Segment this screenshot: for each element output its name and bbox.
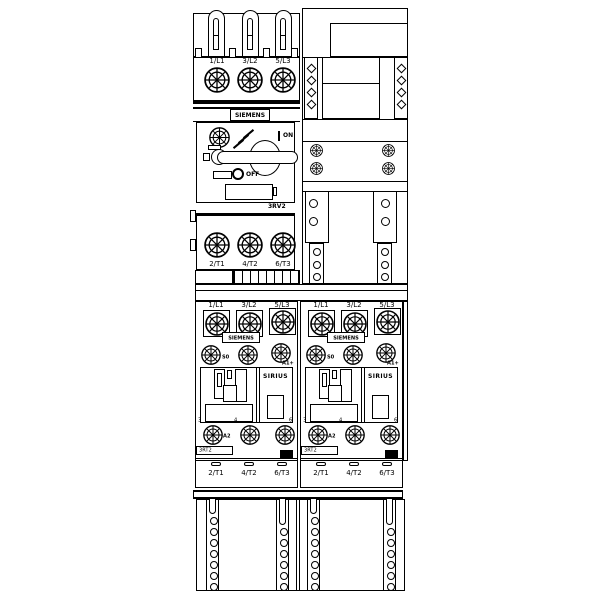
prong-slot (213, 18, 219, 50)
black-tab (280, 450, 293, 458)
face-divider (361, 367, 362, 423)
coil-screw-icon (201, 345, 221, 365)
prong-slot-line (213, 35, 219, 36)
side-clip (190, 210, 196, 222)
rail-hole (311, 550, 319, 558)
terminal-screw-icon (237, 232, 263, 258)
rail-hole (387, 550, 395, 558)
plate-bracket (305, 191, 329, 243)
indicator-slot (332, 370, 337, 379)
model-plate: 3RT2 (196, 446, 233, 455)
indicator-window (223, 385, 237, 402)
terminal-screw-icon (204, 232, 230, 258)
terminal-label: 4/T2 (235, 470, 263, 477)
indicator-slot-inner (322, 373, 327, 387)
rail-hole (210, 528, 218, 536)
rail-hole (311, 583, 319, 591)
rail-hole (280, 550, 288, 558)
series-label: SIRIUS (368, 374, 393, 380)
terminal-label: 1/L1 (307, 302, 335, 309)
adapter-divider (299, 499, 300, 591)
prong-slot (280, 18, 286, 50)
bracket-hole (309, 199, 318, 208)
series-label: SIRIUS (263, 374, 288, 380)
step-line (195, 458, 298, 459)
terminal-label: 4/T2 (340, 470, 368, 477)
off-position-mark (232, 168, 244, 180)
prong-slot-line (247, 35, 253, 36)
busbar-bar (193, 101, 300, 104)
clamp-slot (349, 462, 359, 466)
rail-hole (313, 248, 321, 256)
coil-screw-icon (345, 425, 365, 445)
coil-screw-icon (306, 345, 326, 365)
label-window (310, 404, 358, 422)
motor-starter-assembly-drawing: 1/L1 3/L2 5/L3 SIEMENS ON OFF 3RV2 2/T1 … (190, 5, 412, 597)
size-label: S0 (327, 355, 334, 360)
aux-screw-icon (308, 425, 328, 445)
face-tab (203, 153, 210, 161)
aux-mark: 3 (198, 418, 201, 423)
feeder-comb (233, 270, 300, 284)
rail-hole (210, 539, 218, 547)
prong-slot (247, 18, 253, 50)
rail-hole (381, 261, 389, 269)
bracket-hole (381, 199, 390, 208)
adapter-band (195, 284, 408, 301)
model-label: 3RT2 (304, 448, 317, 453)
rail-hole (387, 539, 395, 547)
brand-label: SIEMENS (224, 336, 258, 341)
rotary-handle (217, 151, 298, 164)
rail-hole (387, 528, 395, 536)
terminal-screw-icon (271, 310, 295, 334)
on-label: ON (283, 133, 293, 139)
rail-hole (280, 561, 288, 569)
rail-hole (381, 273, 389, 281)
rail-hole (311, 572, 319, 580)
model-label: 3RT2 (199, 448, 212, 453)
rail-hole (280, 583, 288, 591)
plate-screw-icon (382, 144, 395, 157)
terminal-screw-icon (376, 310, 400, 334)
aux-screw-icon (380, 425, 400, 445)
on-position-mark (278, 131, 280, 141)
face-divider (364, 367, 365, 423)
terminal-label: 3/L2 (236, 58, 264, 65)
coil-a1-label: A1+ (387, 361, 399, 366)
face-divider (259, 367, 260, 423)
aux-screw-icon (343, 345, 363, 365)
side-clip (190, 239, 196, 251)
terminal-label: 4/T2 (236, 261, 264, 268)
adapter-block (195, 270, 233, 284)
aux-block-window (267, 395, 284, 419)
rail-hole (280, 572, 288, 580)
off-label: OFF (246, 172, 259, 178)
terminal-label: 2/T1 (203, 261, 231, 268)
aux-block-window (372, 395, 389, 419)
terminal-screw-icon (204, 67, 230, 93)
size-label: S0 (222, 355, 229, 360)
terminal-label: 6/T3 (268, 470, 296, 477)
clamp-slot (211, 462, 221, 466)
coil-screw-icon (240, 425, 260, 445)
rail-hole (313, 261, 321, 269)
terminal-label: 3/L2 (340, 302, 368, 309)
indicator-window (328, 385, 342, 402)
brand-plate: SIEMENS (327, 332, 365, 343)
rail-notch (310, 499, 317, 514)
clamp-slot (277, 462, 287, 466)
terminal-label: 5/L3 (269, 58, 297, 65)
clamp-slot (382, 462, 392, 466)
aux-mark: 4 (339, 418, 342, 423)
aux-screw-icon (203, 425, 223, 445)
rail-hole (311, 561, 319, 569)
brand-label: SIEMENS (231, 113, 269, 119)
plate-screw-icon (382, 162, 395, 175)
rail-hole (210, 583, 218, 591)
plate-band-line (302, 119, 408, 120)
rail-notch (386, 499, 393, 525)
rating-window-notch (273, 187, 277, 196)
aux-screw-icon (238, 345, 258, 365)
label-window (205, 404, 253, 422)
plate-band-line (302, 181, 408, 182)
bracket-hole (309, 217, 318, 226)
aux-mark: 6 (289, 418, 292, 423)
rail-hole (381, 248, 389, 256)
brand-plate: SIEMENS (222, 332, 260, 343)
rail-hole (311, 517, 319, 525)
rail-hole (387, 561, 395, 569)
plate-screw-icon (310, 162, 323, 175)
terminal-label: 3/L2 (235, 302, 263, 309)
brand-label: SIEMENS (329, 336, 363, 341)
plate-window-divider (322, 83, 380, 84)
aux-mark: 3 (303, 418, 306, 423)
clamp-slot (316, 462, 326, 466)
plate-screw-icon (310, 144, 323, 157)
terminal-label: 6/T3 (373, 470, 401, 477)
rail-hole (387, 572, 395, 580)
right-edge-strip (403, 301, 408, 461)
terminal-label: 2/T1 (307, 470, 335, 477)
prong-slot-line (280, 35, 286, 36)
terminal-screw-icon (270, 232, 296, 258)
rail-hole (280, 528, 288, 536)
plate-center-window (322, 57, 380, 119)
face-detail (213, 171, 232, 179)
rail-notch (279, 499, 286, 525)
breaker-model-label: 3RV2 (268, 204, 286, 210)
bracket-hole (381, 217, 390, 226)
rail-hole (210, 550, 218, 558)
terminal-screw-icon (237, 67, 263, 93)
rail-hole (280, 539, 288, 547)
aux-mark: 4 (234, 418, 237, 423)
indicator-slot (227, 370, 232, 379)
rating-window (225, 184, 273, 200)
terminal-label: 1/L1 (202, 302, 230, 309)
black-tab (385, 450, 398, 458)
terminal-label: 2/T1 (202, 470, 230, 477)
adapter-divider (296, 499, 297, 591)
plate-band-line (302, 141, 408, 142)
coil-a2-label: A2 (223, 434, 231, 439)
plate-top-cutout (330, 23, 408, 57)
rail-notch (209, 499, 216, 514)
face-divider (256, 367, 257, 423)
clamp-slot (244, 462, 254, 466)
rail-hole (311, 528, 319, 536)
model-plate: 3RT2 (301, 446, 338, 455)
rail-hole (210, 561, 218, 569)
rail-hole (311, 539, 319, 547)
terminal-label: 1/L1 (203, 58, 231, 65)
indicator-slot-inner (217, 373, 222, 387)
aux-screw-icon (275, 425, 295, 445)
rail-hole (210, 572, 218, 580)
busbar-adapter-base (196, 499, 405, 591)
adapter-band-line (195, 290, 408, 291)
rail-hole (387, 583, 395, 591)
drawing-canvas: 1/L1 3/L2 5/L3 SIEMENS ON OFF 3RV2 2/T1 … (0, 0, 600, 600)
coil-a2-label: A2 (328, 434, 336, 439)
adapter-top-band (193, 490, 403, 499)
brand-plate: SIEMENS (230, 109, 270, 121)
step-line (300, 458, 403, 459)
rail-hole (210, 517, 218, 525)
coil-a1-label: A1+ (282, 361, 294, 366)
terminal-label: 6/T3 (269, 261, 297, 268)
aux-mark: 6 (394, 418, 397, 423)
rail-hole (313, 273, 321, 281)
terminal-screw-icon (270, 67, 296, 93)
